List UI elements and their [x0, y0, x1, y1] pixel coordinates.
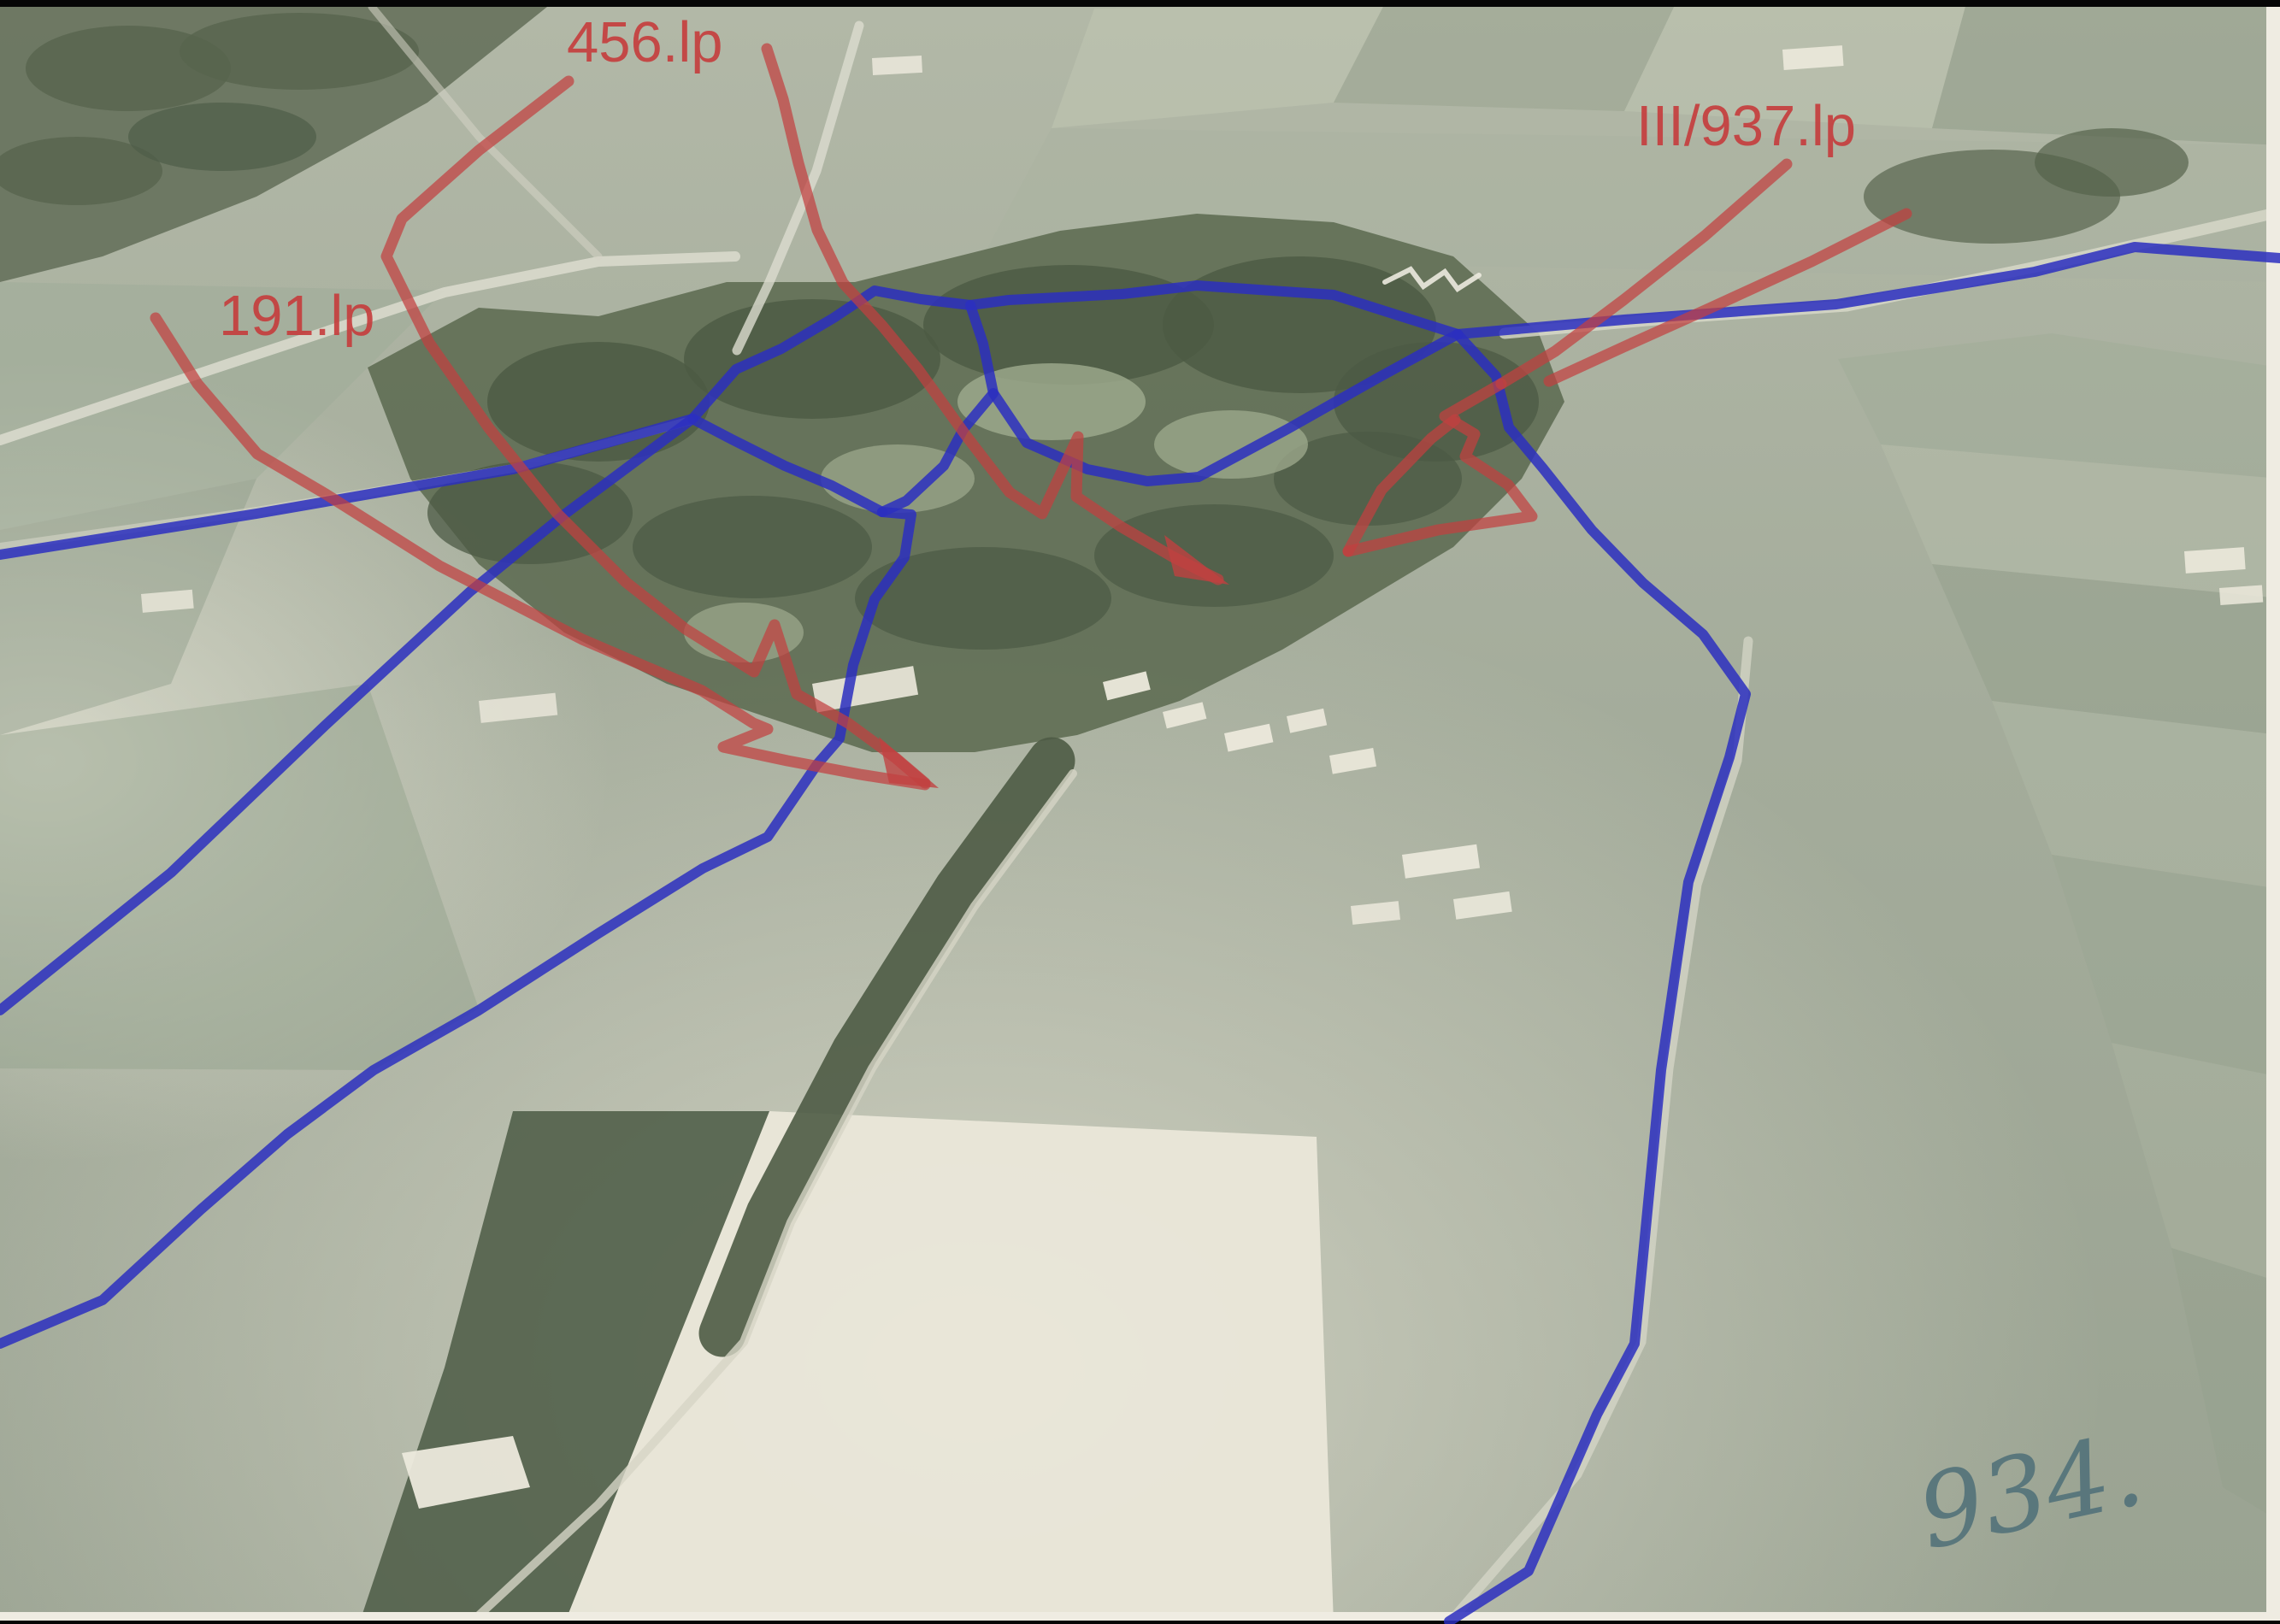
front-line-north_loop: [970, 305, 1458, 481]
front-line-west_connector: [692, 419, 882, 512]
frame-number-handwriting: 934.: [1908, 1410, 2153, 1573]
unit-label: 456.lp: [567, 10, 723, 74]
unit-label: III/937.lp: [1636, 94, 1856, 158]
attack-arrow-r937_a: [1501, 164, 1787, 384]
annotated-aerial-photo: 456.lpIII/937.lp191.lp934.: [0, 0, 2280, 1624]
attack-arrowhead-1: [1164, 535, 1229, 585]
unit-label: 191.lp: [219, 284, 375, 348]
annotation-overlay: 456.lpIII/937.lp191.lp934.: [0, 0, 2280, 1624]
attack-arrow-r191: [156, 318, 925, 785]
